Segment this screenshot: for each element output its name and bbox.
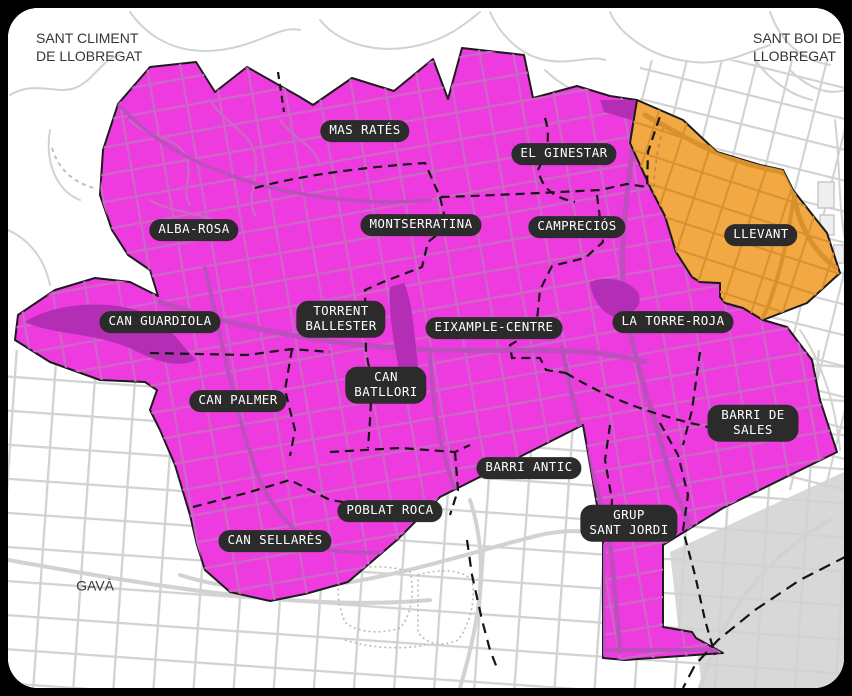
neighborhood-label-la-torre-roja: LA TORRE-ROJA: [612, 311, 733, 333]
municipality-label-sant-boi: SANT BOI DE LLOBREGAT: [753, 30, 841, 65]
neighborhood-label-mas-rates: MAS RATÉS: [320, 120, 409, 142]
neighborhood-label-barri-antic: BARRI ANTIC: [476, 457, 581, 479]
neighborhood-label-eixample-centre: EIXAMPLE-CENTRE: [426, 317, 563, 339]
map-graphic: [8, 8, 844, 688]
municipality-label-sant-climent: SANT CLIMENT DE LLOBREGAT: [36, 30, 142, 65]
neighborhood-label-can-palmer: CAN PALMER: [189, 390, 286, 412]
screenshot-root: { "map": { "highlighted_neighborhood": "…: [0, 0, 852, 696]
municipality-label-gava: GAVÀ: [76, 577, 114, 595]
map-canvas[interactable]: MAS RATÉS EL GINESTAR ALBA-ROSA MONTSERR…: [8, 8, 844, 688]
neighborhood-label-llevant: LLEVANT: [724, 224, 797, 246]
neighborhood-label-torrent-ballester: TORRENT BALLESTER: [296, 301, 385, 338]
neighborhood-label-el-ginestar: EL GINESTAR: [511, 143, 616, 165]
neighborhood-label-poblat-roca: POBLAT ROCA: [337, 500, 442, 522]
neighborhood-label-grup-sant-jordi: GRUP SANT JORDI: [580, 505, 677, 542]
neighborhood-label-can-guardiola: CAN GUARDIOLA: [99, 311, 220, 333]
neighborhood-label-can-sellares: CAN SELLARÈS: [218, 530, 331, 552]
neighborhood-label-can-batllori: CAN BATLLORI: [345, 367, 426, 404]
neighborhood-label-montserratina: MONTSERRATINA: [360, 214, 481, 236]
neighborhood-label-camprecios: CAMPRECIÓS: [528, 216, 625, 238]
neighborhood-label-alba-rosa: ALBA-ROSA: [149, 219, 238, 241]
neighborhood-label-barri-de-sales: BARRI DE SALES: [708, 405, 799, 442]
